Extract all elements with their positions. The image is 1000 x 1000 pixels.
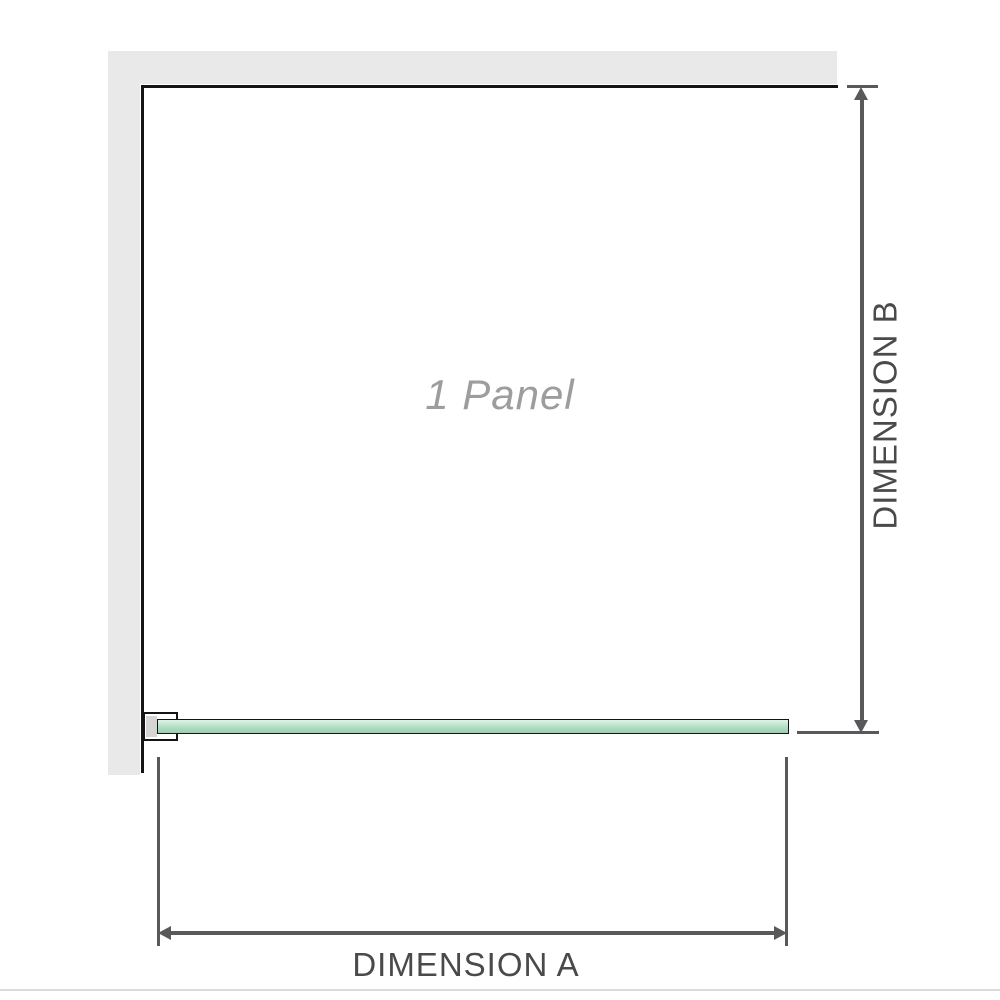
glass-panel — [157, 719, 789, 734]
footer-divider-line — [0, 989, 1000, 991]
wall-top-segment — [108, 51, 837, 84]
arrow-up-icon — [854, 87, 868, 100]
bracket-pad — [146, 716, 157, 737]
dimension-a-left-tick — [157, 757, 160, 946]
watermark-panel-label: 1 Panel — [0, 374, 1000, 416]
arrow-down-icon — [854, 720, 868, 733]
dimension-b-line — [860, 99, 863, 720]
panel-frame-left-line — [141, 85, 144, 773]
panel-dimension-diagram: 1 Panel DIMENSION B DIMENSION A — [0, 0, 1000, 1000]
dimension-a-right-tick — [785, 757, 788, 946]
dimension-a-label: DIMENSION A — [346, 948, 586, 981]
dimension-b-label: DIMENSION B — [869, 300, 902, 529]
arrow-left-icon — [158, 926, 171, 940]
dimension-a-line — [171, 931, 774, 934]
panel-frame-top-line — [141, 85, 838, 88]
arrow-right-icon — [774, 926, 787, 940]
